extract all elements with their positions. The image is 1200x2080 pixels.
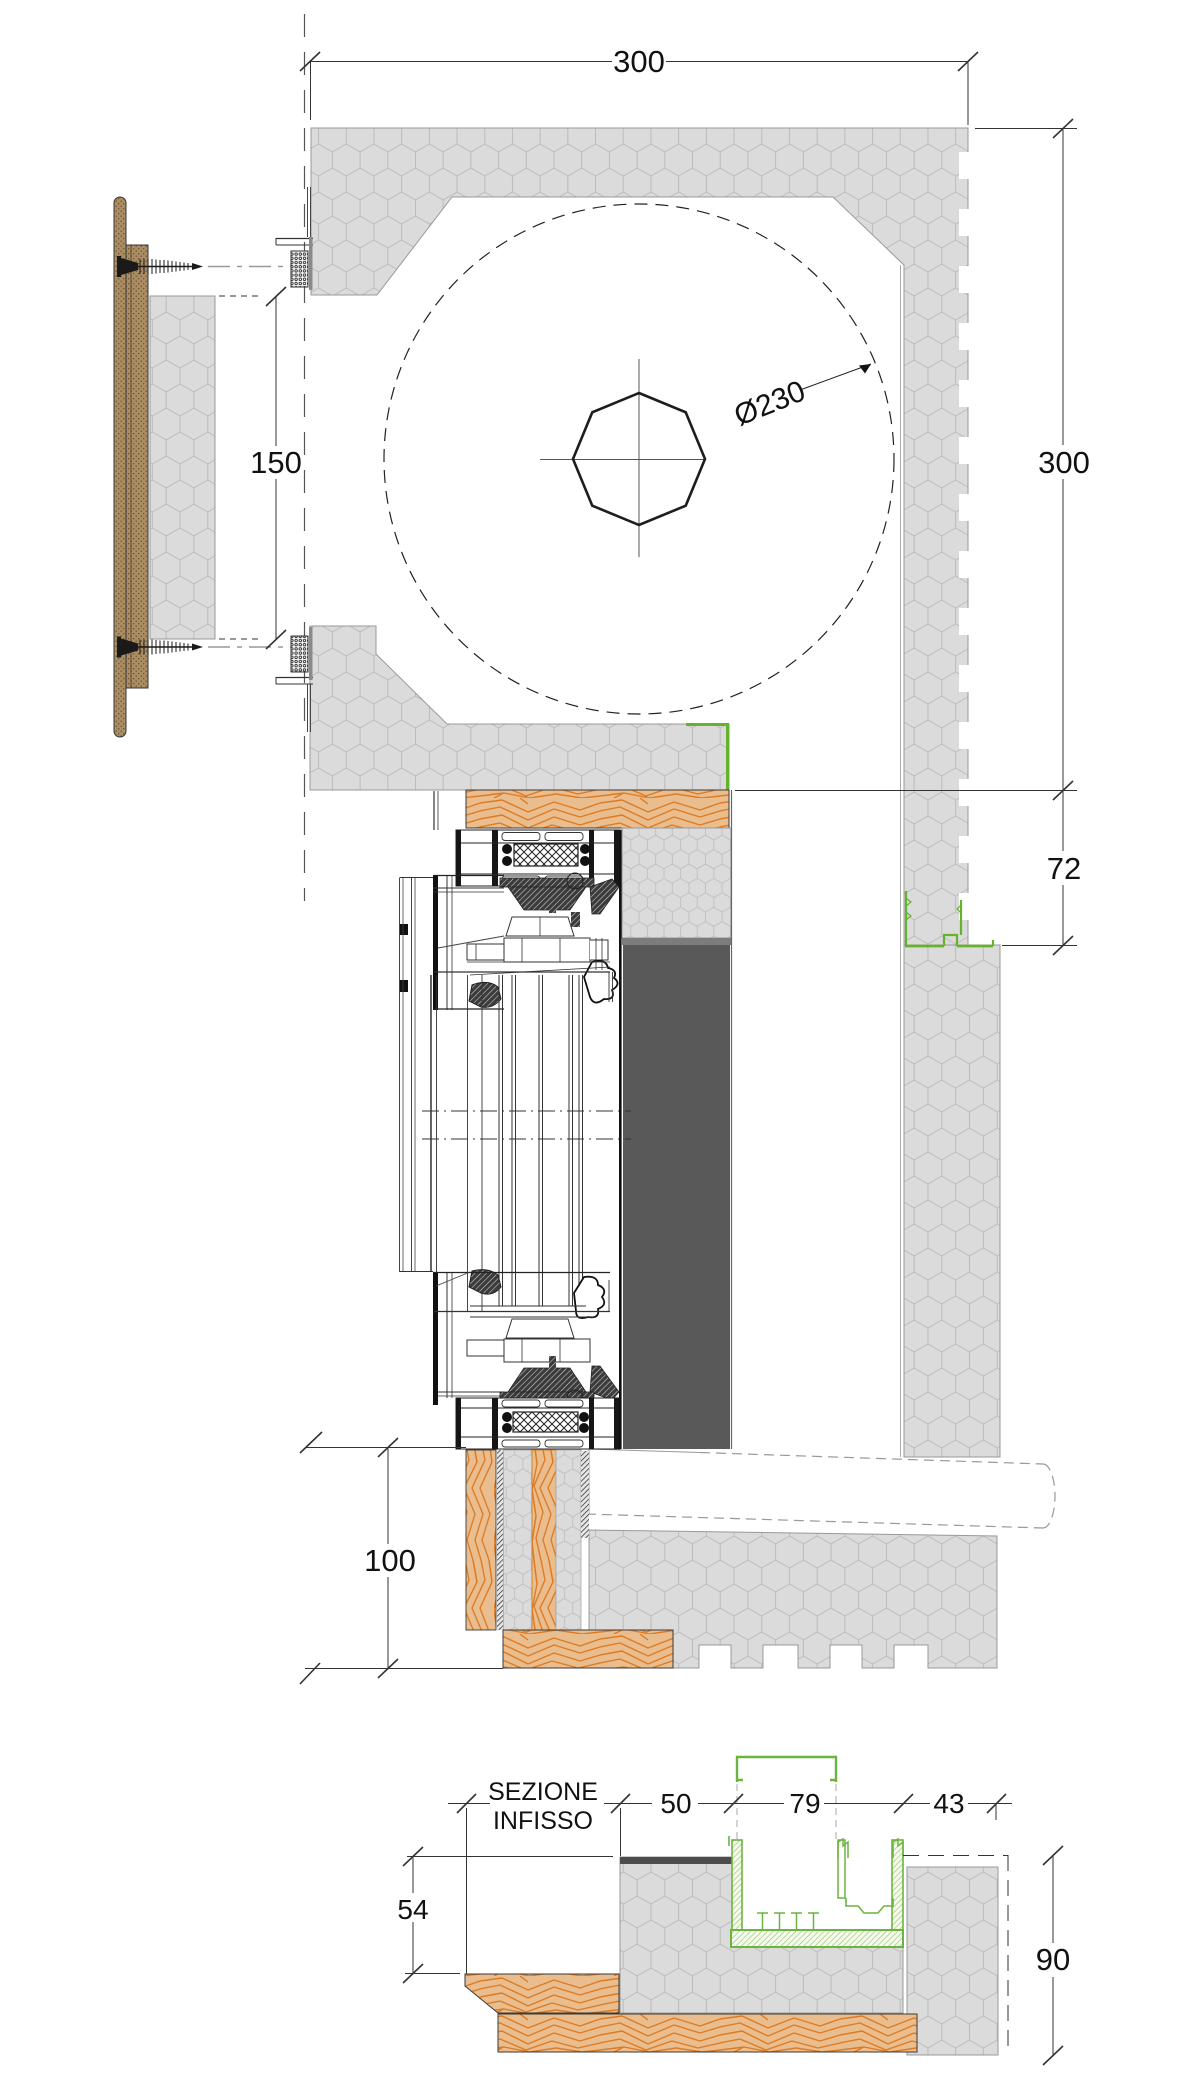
svg-text:100: 100: [364, 1543, 416, 1578]
svg-text:SEZIONE: SEZIONE: [488, 1778, 598, 1806]
svg-text:43: 43: [933, 1788, 964, 1819]
svg-text:50: 50: [660, 1788, 691, 1819]
svg-text:INFISSO: INFISSO: [493, 1807, 593, 1835]
svg-text:54: 54: [397, 1894, 428, 1925]
svg-text:90: 90: [1036, 1942, 1070, 1977]
svg-text:79: 79: [789, 1788, 820, 1819]
svg-text:300: 300: [613, 44, 665, 79]
svg-text:300: 300: [1038, 445, 1090, 480]
svg-text:150: 150: [250, 445, 302, 480]
svg-text:72: 72: [1047, 851, 1081, 886]
